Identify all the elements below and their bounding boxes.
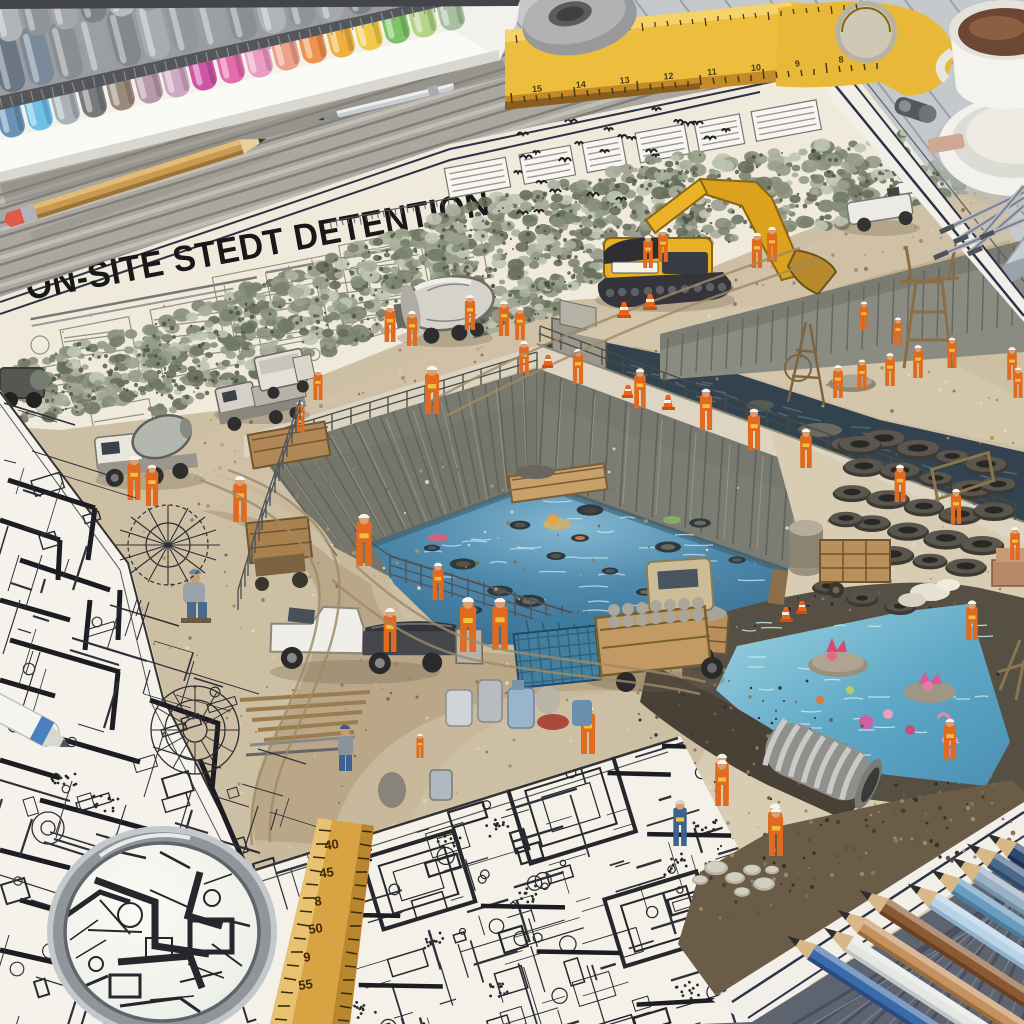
svg-text:9: 9: [794, 58, 800, 68]
svg-text:15: 15: [532, 83, 543, 94]
svg-text:14: 14: [575, 79, 586, 90]
svg-text:13: 13: [619, 75, 630, 86]
svg-text:8: 8: [838, 54, 844, 64]
svg-text:12: 12: [663, 71, 674, 82]
svg-text:10: 10: [751, 62, 762, 73]
svg-text:11: 11: [707, 66, 717, 77]
